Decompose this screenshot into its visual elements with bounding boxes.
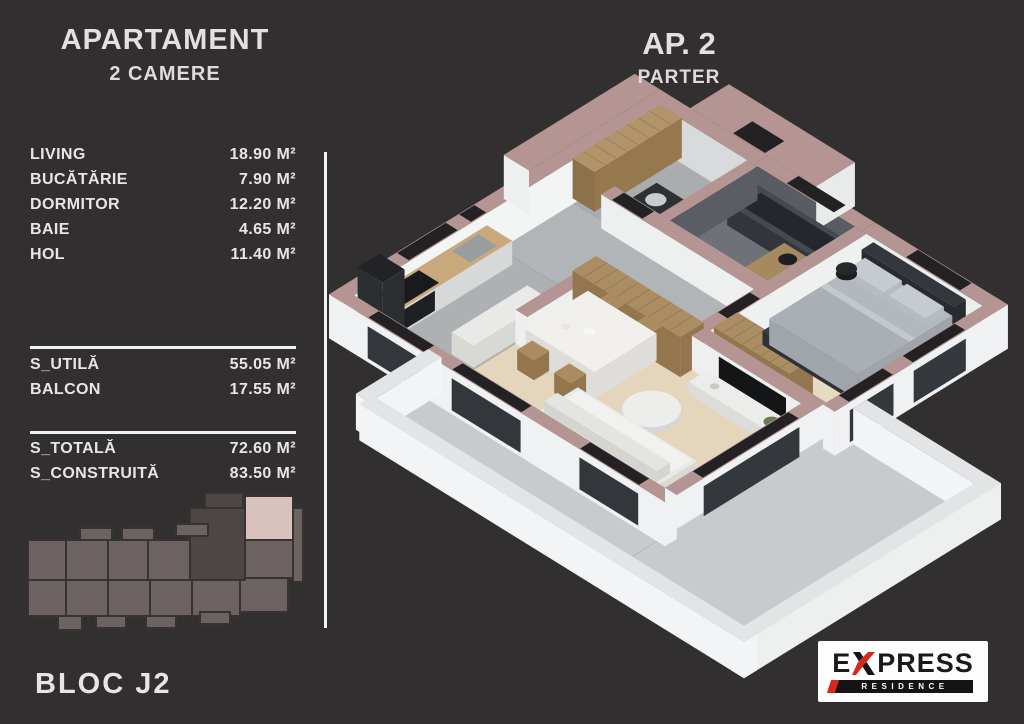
summary-row-construita: S_CONSTRUITĂ 83.50 M² (30, 465, 296, 490)
page-subtitle: 2 CAMERE (0, 63, 330, 86)
express-residence-logo: E PRESS RESIDENCE (818, 641, 988, 702)
divider-horizontal-1 (30, 346, 296, 349)
logo-x-icon (852, 652, 876, 675)
room-label: DORMITOR (30, 196, 120, 214)
room-row-bucatarie: BUCĂTĂRIE 7.90 M² (30, 171, 296, 196)
room-label: LIVING (30, 146, 86, 164)
room-area-list: LIVING 18.90 M² BUCĂTĂRIE 7.90 M² DORMIT… (30, 146, 296, 271)
summary-row-totala: S_TOTALĂ 72.60 M² (30, 440, 296, 465)
useful-area-list: S_UTILĂ 55.05 M² BALCON 17.55 M² (30, 356, 296, 406)
bloc-label: BLOC J2 (35, 668, 171, 701)
room-value: 4.65 M² (239, 221, 296, 239)
room-value: 11.40 M² (231, 246, 296, 264)
divider-horizontal-2 (30, 431, 296, 434)
summary-label: S_UTILĂ (30, 356, 99, 374)
summary-value: 17.55 M² (230, 381, 296, 399)
unit-floor: PARTER (559, 67, 799, 89)
summary-value: 83.50 M² (230, 465, 296, 483)
room-value: 18.90 M² (230, 146, 296, 164)
room-value: 12.20 M² (230, 196, 296, 214)
divider-vertical (324, 152, 327, 628)
summary-label: S_TOTALĂ (30, 440, 116, 458)
building-site-plan (28, 493, 303, 630)
brochure-page: APARTAMENT 2 CAMERE AP. 2 PARTER LIVING … (0, 0, 1024, 724)
logo-text-pre: E (832, 650, 851, 677)
room-label: BUCĂTĂRIE (30, 171, 128, 189)
apartment-floorplan (329, 74, 1008, 679)
room-row-living: LIVING 18.90 M² (30, 146, 296, 171)
room-row-baie: BAIE 4.65 M² (30, 221, 296, 246)
room-row-hol: HOL 11.40 M² (30, 246, 296, 271)
logo-sub-text: RESIDENCE (857, 683, 948, 691)
page-title: APARTAMENT (0, 24, 330, 57)
room-row-dormitor: DORMITOR 12.20 M² (30, 196, 296, 221)
logo-accent-notch (827, 680, 839, 693)
summary-label: BALCON (30, 381, 101, 399)
logo-sub-bar: RESIDENCE (833, 680, 973, 693)
unit-number: AP. 2 (559, 26, 799, 62)
summary-value: 55.05 M² (230, 356, 296, 374)
room-value: 7.90 M² (239, 171, 296, 189)
summary-row-balcon: BALCON 17.55 M² (30, 381, 296, 406)
total-area-list: S_TOTALĂ 72.60 M² S_CONSTRUITĂ 83.50 M² (30, 440, 296, 490)
unit-header: AP. 2 PARTER (559, 26, 799, 89)
summary-value: 72.60 M² (230, 440, 296, 458)
logo-text-post: PRESS (877, 650, 974, 677)
summary-row-utila: S_UTILĂ 55.05 M² (30, 356, 296, 381)
title-block: APARTAMENT 2 CAMERE (0, 24, 330, 86)
logo-main-text: E PRESS (832, 650, 974, 677)
room-label: HOL (30, 246, 65, 264)
summary-label: S_CONSTRUITĂ (30, 465, 159, 483)
room-label: BAIE (30, 221, 70, 239)
